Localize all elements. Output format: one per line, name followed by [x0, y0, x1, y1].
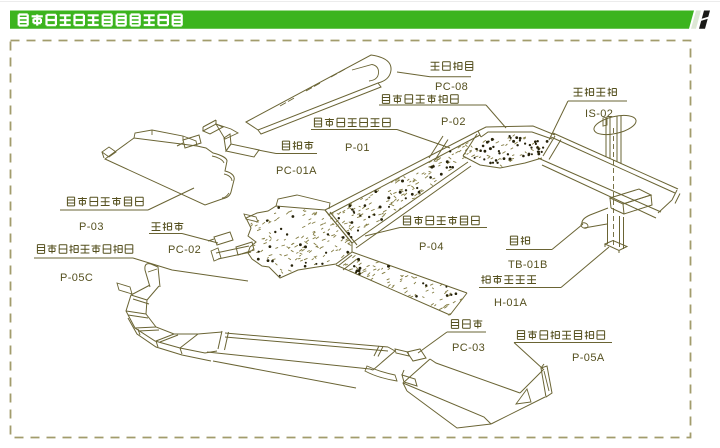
svg-text:PC-01A: PC-01A: [276, 165, 317, 177]
svg-text:PC-03: PC-03: [452, 342, 485, 354]
svg-text:P-01: P-01: [345, 142, 370, 154]
svg-text:PC-02: PC-02: [168, 244, 201, 256]
svg-text:P-03: P-03: [79, 221, 104, 233]
svg-text:P-05C: P-05C: [60, 272, 93, 284]
svg-text:P-02: P-02: [441, 116, 466, 128]
svg-text:TB-01B: TB-01B: [508, 259, 548, 271]
svg-text:P-04: P-04: [419, 241, 444, 253]
svg-text:P-05A: P-05A: [572, 352, 605, 364]
svg-text:PC-08: PC-08: [435, 81, 468, 93]
svg-text:H-01A: H-01A: [494, 297, 527, 309]
